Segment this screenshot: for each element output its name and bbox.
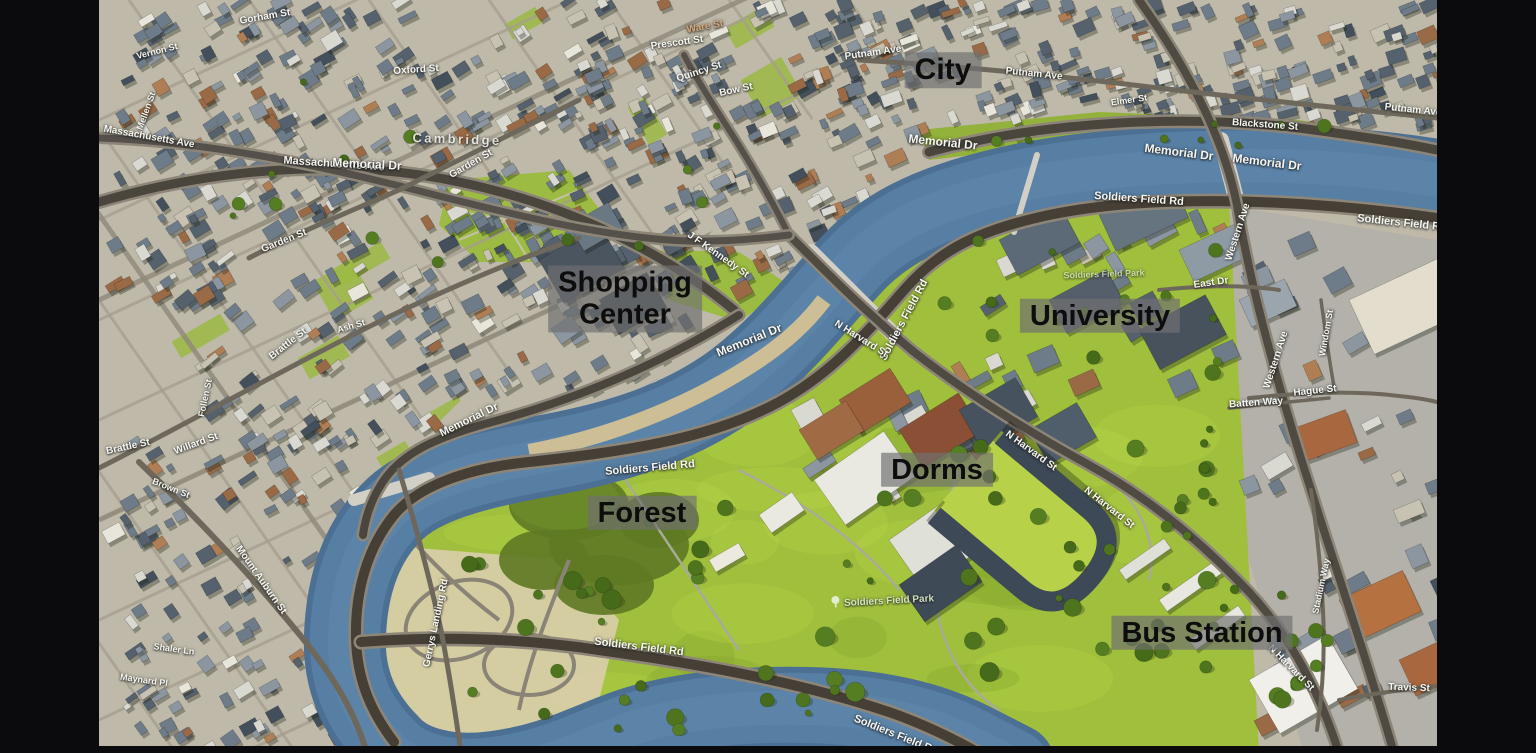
map-scene: [99, 0, 1437, 753]
letterbox-right: [1437, 0, 1536, 753]
screenshot-stage: Massachusetts AveMassachusetts AveCambri…: [0, 0, 1536, 753]
map-3d-view[interactable]: Massachusetts AveMassachusetts AveCambri…: [99, 0, 1437, 753]
letterbox-bottom: [0, 746, 1536, 753]
letterbox-left: [0, 0, 99, 753]
